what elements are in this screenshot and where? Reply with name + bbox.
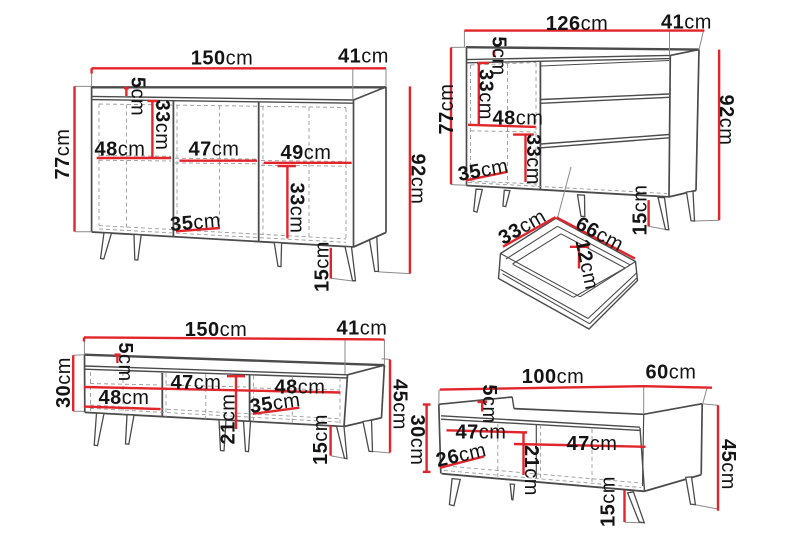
- svg-text:49cm: 49cm: [281, 142, 332, 164]
- svg-text:92cm: 92cm: [407, 154, 429, 205]
- svg-text:126cm: 126cm: [546, 13, 609, 35]
- svg-text:21cm: 21cm: [218, 394, 240, 445]
- svg-text:15cm: 15cm: [310, 414, 332, 465]
- svg-text:150cm: 150cm: [191, 48, 254, 70]
- svg-text:47cm: 47cm: [567, 433, 618, 455]
- svg-text:41cm: 41cm: [338, 46, 389, 68]
- svg-text:77cm: 77cm: [52, 129, 74, 180]
- svg-text:33cm: 33cm: [522, 134, 544, 185]
- svg-text:30cm: 30cm: [53, 357, 75, 408]
- svg-text:60cm: 60cm: [646, 362, 697, 384]
- svg-text:41cm: 41cm: [337, 318, 388, 340]
- svg-text:15cm: 15cm: [630, 185, 652, 236]
- svg-text:5cm: 5cm: [478, 384, 500, 423]
- svg-text:45cm: 45cm: [717, 439, 739, 490]
- svg-text:92cm: 92cm: [715, 95, 737, 146]
- svg-text:150cm: 150cm: [185, 319, 248, 341]
- svg-text:33cm: 33cm: [286, 183, 308, 234]
- svg-text:35cm: 35cm: [169, 210, 222, 236]
- svg-text:33cm: 33cm: [151, 100, 173, 151]
- svg-text:48cm: 48cm: [95, 139, 146, 161]
- svg-text:47cm: 47cm: [189, 139, 240, 161]
- svg-text:48cm: 48cm: [99, 387, 150, 409]
- svg-text:77cm: 77cm: [436, 84, 458, 135]
- svg-text:41cm: 41cm: [661, 12, 712, 34]
- svg-text:15cm: 15cm: [312, 241, 334, 292]
- svg-text:5cm: 5cm: [127, 77, 149, 116]
- svg-text:5cm: 5cm: [114, 342, 136, 381]
- svg-text:30cm: 30cm: [406, 415, 428, 466]
- svg-text:47cm: 47cm: [171, 372, 222, 394]
- svg-text:48cm: 48cm: [493, 108, 544, 130]
- svg-text:21cm: 21cm: [520, 445, 542, 496]
- svg-text:100cm: 100cm: [522, 366, 585, 388]
- svg-text:15cm: 15cm: [598, 476, 620, 527]
